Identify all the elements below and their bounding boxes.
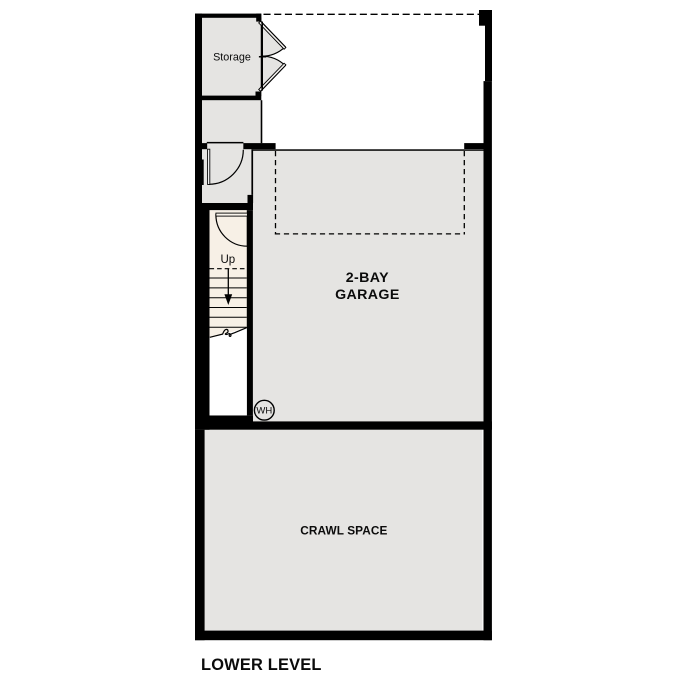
- svg-text:GARAGE: GARAGE: [335, 287, 400, 303]
- svg-text:Storage: Storage: [213, 51, 251, 63]
- svg-text:LOWER LEVEL: LOWER LEVEL: [201, 656, 322, 674]
- svg-text:Up: Up: [220, 254, 235, 266]
- svg-text:CRAWL SPACE: CRAWL SPACE: [300, 524, 387, 538]
- svg-text:2-BAY: 2-BAY: [346, 270, 389, 286]
- svg-text:WH: WH: [256, 405, 272, 416]
